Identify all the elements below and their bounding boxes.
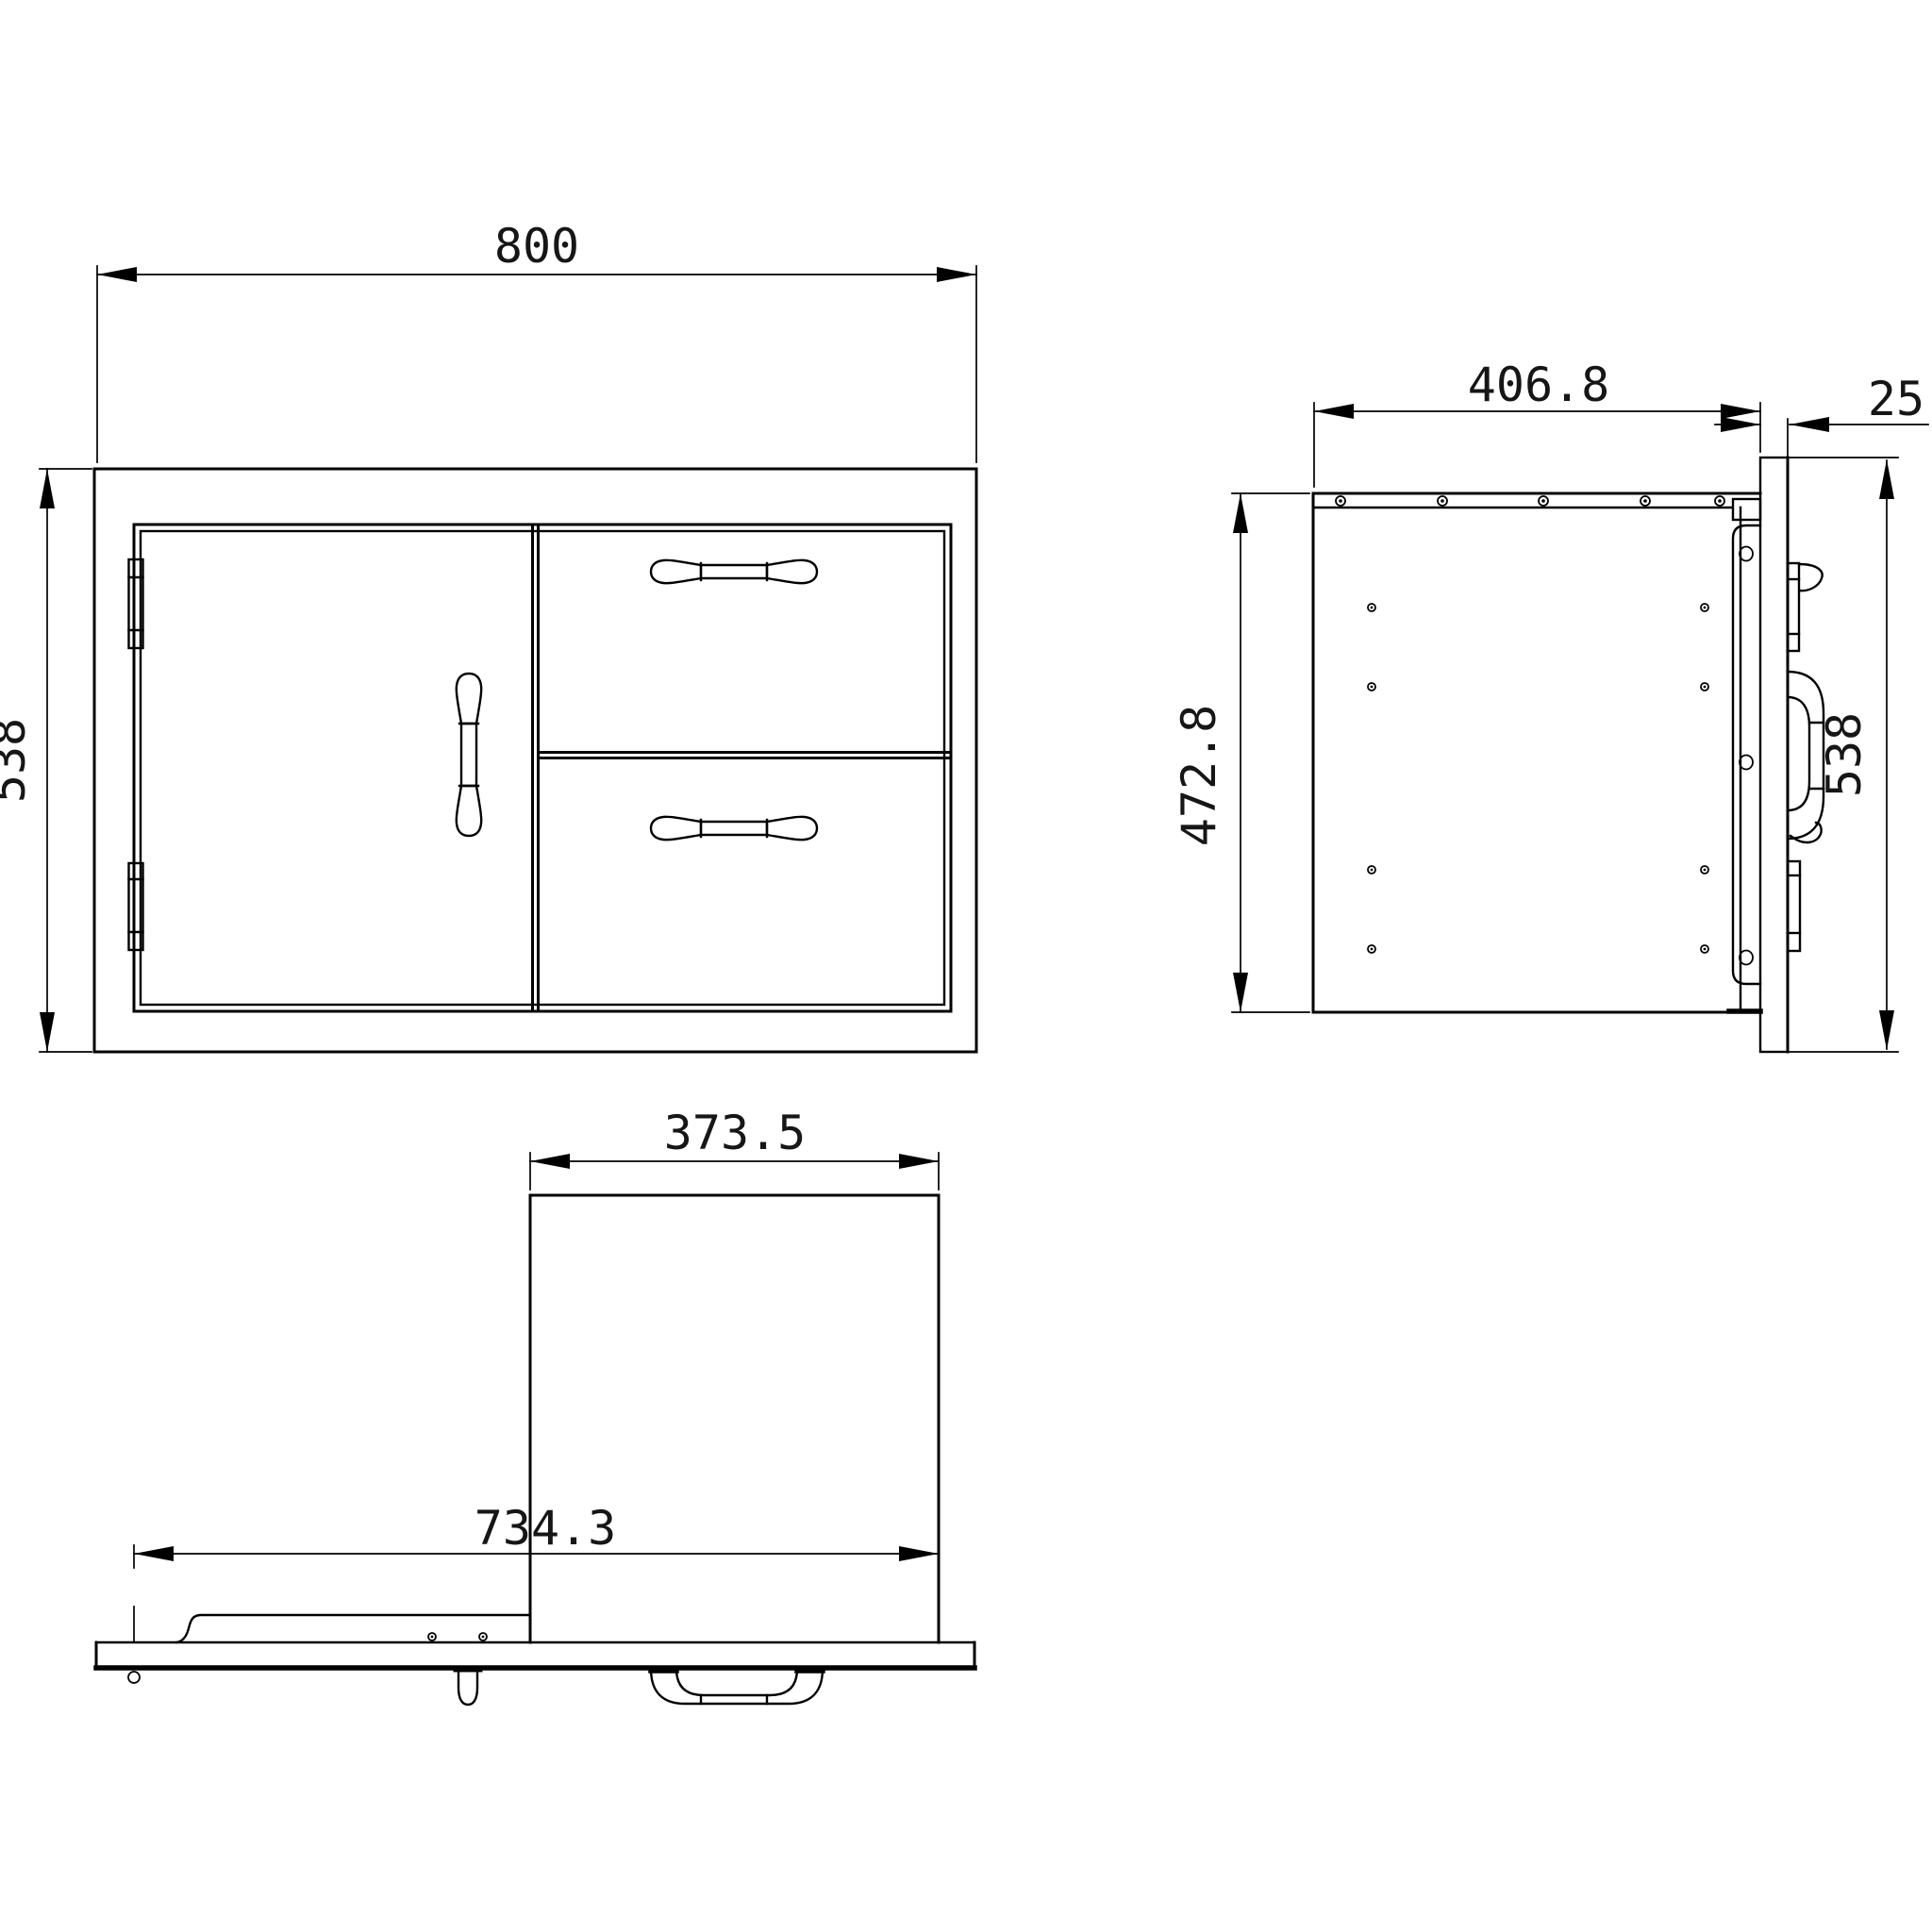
mounting-screws (1336, 496, 1724, 506)
dim-label-side-body-height: 472.8 (1172, 705, 1226, 847)
dim-side-panel-thickness: 25 (1715, 372, 1928, 458)
arrowhead-left (1790, 417, 1829, 432)
dim-label-bottom-slide-extension: 734.3 (475, 1501, 617, 1556)
arrowhead-right (899, 1154, 939, 1169)
dim-label-bottom-drawer-depth: 373.5 (664, 1106, 807, 1160)
dim-side-panel-height: 538 (1790, 458, 1898, 1052)
arrowhead-right (1721, 404, 1760, 419)
dim-bottom-drawer-depth: 373.5 (530, 1106, 939, 1190)
arrowhead-right (899, 1546, 939, 1561)
arrowhead-right (937, 267, 976, 282)
bottom-plan-view: 373.5 734.3 (96, 1106, 974, 1705)
technical-drawing-page: 800 538 (0, 0, 1932, 1932)
side-view: 406.8 25 472.8 538 (1172, 358, 1928, 1052)
dim-label-side-panel-height: 538 (1817, 712, 1872, 797)
dim-label-side-panel-thickness: 25 (1868, 372, 1924, 426)
arrowhead-up (40, 469, 55, 508)
door-handle (457, 674, 481, 836)
outer-frame (94, 469, 976, 1052)
arrowhead-left (97, 267, 137, 282)
inner-frame-outer-line (134, 525, 951, 1011)
arrowhead-up (1879, 459, 1894, 499)
arrowhead-down (1879, 1010, 1894, 1050)
front-view: 800 538 (0, 219, 976, 1052)
front-panel-edge (1760, 458, 1788, 1052)
arrowhead-right (1721, 417, 1760, 432)
inner-frame-inner-line (141, 531, 944, 1005)
arrowhead-down (1233, 973, 1248, 1012)
arrowhead-left (530, 1154, 570, 1169)
hinge-pin (455, 1671, 481, 1705)
dim-label-front-width: 800 (494, 219, 579, 274)
upper-drawer-handle-profile (1788, 563, 1823, 651)
slide-rail (176, 1615, 530, 1642)
arrowhead-up (1233, 493, 1248, 533)
dim-front-width: 800 (97, 219, 976, 462)
hinge-pin-hole (128, 1672, 140, 1683)
drawer-box-outline (530, 1195, 939, 1642)
lower-drawer-handle (651, 817, 817, 840)
side-panel-holes (1368, 604, 1708, 953)
drawing-canvas: 800 538 (0, 0, 1932, 1932)
dim-front-height: 538 (0, 469, 92, 1052)
arrowhead-down (40, 1012, 55, 1052)
dim-label-front-height: 538 (0, 718, 36, 803)
handle-bottom-profile (651, 1669, 823, 1704)
arrowhead-left (134, 1546, 174, 1561)
dim-side-depth: 406.8 (1314, 358, 1760, 487)
arrowhead-left (1314, 404, 1354, 419)
lower-drawer-handle-profile (1788, 861, 1800, 951)
dim-side-body-height: 472.8 (1172, 493, 1309, 1012)
front-panel-plate (96, 1642, 974, 1668)
side-mounting-bracket (1733, 525, 1760, 984)
strip-front-notch (1733, 499, 1760, 520)
dim-bottom-slide-extension: 734.3 (134, 1501, 939, 1641)
upper-drawer-handle (651, 560, 817, 583)
dim-label-side-depth: 406.8 (1468, 358, 1610, 412)
